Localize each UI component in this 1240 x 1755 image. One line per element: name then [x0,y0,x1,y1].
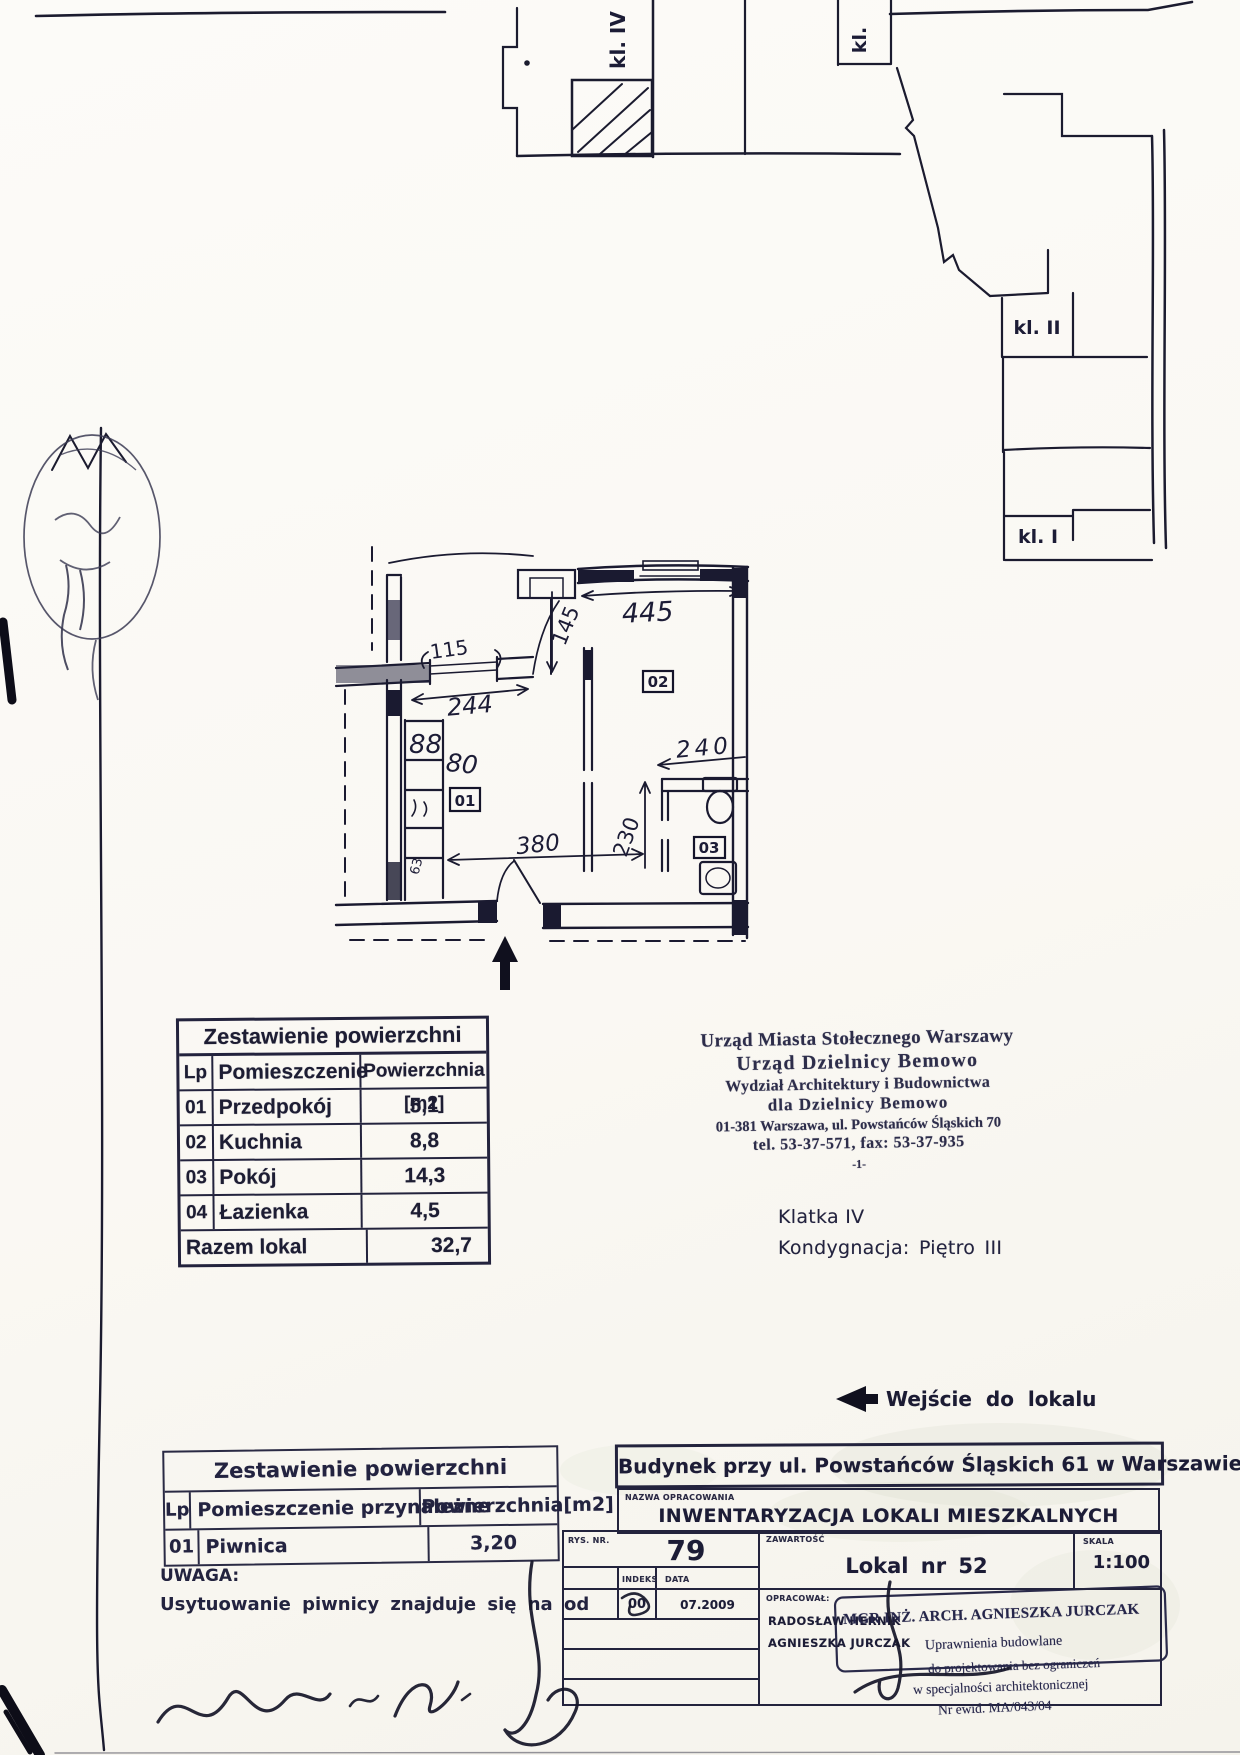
room-label-01: 01 [455,792,476,810]
col-area: Powierzchnia[m2] [421,1486,614,1525]
dim-80: 80 [445,748,480,780]
note-text: Usytuowanie piwnicy znajduje się na odwr… [160,1594,590,1615]
total-value: 32,7 [368,1229,488,1263]
drawing-name: INWENTARYZACJA LOKALI MIESZKALNYCH [619,1505,1158,1527]
washbasin-fixture [700,862,736,894]
annex-table-header: Lp Pomieszczenie przynależne Powierzchni… [165,1487,557,1530]
index-label-cell: INDEKS [619,1568,657,1590]
drawing-number-cell: RYS. NR. 79 [564,1532,760,1568]
col-lp: Lp [179,1056,213,1089]
dim-115: 115 [428,635,469,664]
table-total-row: Razem lokal 32,7 [181,1229,488,1265]
scale-label: SKALA [1083,1537,1114,1546]
col-area: Powierzchnia [m2] [361,1054,486,1088]
area-table-title: Zestawienie powierzchni [179,1019,486,1057]
office-stamp: Urząd Miasta Stołecznego Warszawy Urząd … [627,1024,1089,1176]
area-summary-table: Zestawienie powierzchni Lp Pomieszczenie… [176,1016,491,1268]
scanned-inventory-sheet: kl. IV kl. kl. II kl. I [0,0,1240,1755]
row-lp: 01 [180,1091,214,1124]
room-label-03: 03 [699,839,720,857]
building-address: Budynek przy ul. Powstańców Śląskich 61 … [615,1442,1164,1489]
table-row: 01 Piwnica 3,20 [165,1525,557,1564]
location-info: Klatka IV Kondygnacja: Piętro III [778,1206,1002,1259]
drawing-number-label: RYS. NR. [568,1536,610,1545]
empty-cell [564,1650,760,1680]
contents-value: Lokal nr 52 [760,1554,1073,1578]
col-room: Pomieszczenie [213,1055,361,1089]
prepared-by-label: OPRACOWAŁ: [766,1594,830,1603]
table-row: 02 Kuchnia 8,8 [180,1124,487,1162]
table-row: 01 Przedpokój 5,1 [180,1089,487,1127]
prepared-by-name: AGNIESZKA JURCZAK [768,1636,910,1650]
col-room: Pomieszczenie przynależne [191,1489,421,1528]
row-room: Kuchnia [214,1125,362,1159]
dim-240: 240 [675,733,733,764]
date-label: DATA [665,1575,689,1584]
stairwell-label-kl-ii: kl. II [1013,317,1060,339]
table-row: 04 Łazienka 4,5 [180,1194,487,1232]
drawing-name-label: NAZWA OPRACOWANIA [625,1493,734,1502]
scale-cell: SKALA 1:100 [1075,1532,1160,1590]
drawing-name-cell: NAZWA OPRACOWANIA INWENTARYZACJA LOKALI … [617,1488,1160,1534]
row-room: Łazienka [214,1195,362,1229]
col-lp: Lp [165,1492,192,1528]
index-label: INDEKS [622,1575,658,1584]
row-area: 14,3 [362,1159,487,1193]
floor-label: Kondygnacja: Piętro III [778,1237,1002,1259]
row-area: 3,20 [429,1525,557,1561]
empty-cell [564,1620,760,1650]
row-area: 8,8 [362,1124,487,1158]
scale-value: 1:100 [1075,1552,1160,1573]
dimension-lines [412,587,745,868]
annex-area-table: Zestawienie powierzchni Lp Pomieszczenie… [162,1445,560,1567]
contents-cell: ZAWARTOŚĆ Lokal nr 52 [760,1532,1075,1590]
stairwell-label-kl-i: kl. I [1018,526,1058,548]
contents-label: ZAWARTOŚĆ [766,1535,825,1544]
index-value: 00 [619,1590,657,1620]
empty-cell [564,1680,760,1704]
total-label: Razem lokal [181,1230,368,1265]
row-area: 5,1 [362,1089,487,1123]
room-label-02: 02 [648,673,669,691]
dim-380: 380 [515,830,561,860]
row-lp: 01 [165,1530,199,1564]
staircase-label: Klatka IV [778,1206,1002,1228]
row-lp: 04 [180,1196,214,1229]
empty-cell [564,1590,619,1620]
annex-table-title: Zestawienie powierzchni [164,1447,557,1492]
site-plan-drawing [503,0,1166,560]
row-lp: 03 [180,1161,214,1194]
entrance-arrow-icon [492,936,518,990]
dim-445: 445 [621,596,674,630]
entrance-legend-label: Wejście do lokalu [886,1387,1096,1411]
scan-marks [2,622,40,1755]
row-room: Przedpokój [214,1090,362,1124]
table-row: 03 Pokój 14,3 [180,1159,487,1197]
round-stamp [24,435,160,700]
dim-88: 88 [409,730,442,760]
row-area: 4,5 [362,1194,487,1228]
dim-244: 244 [446,690,494,722]
entrance-legend-arrow-icon [836,1386,878,1412]
area-table-header: Lp Pomieszczenie Powierzchnia [m2] [179,1054,486,1092]
stairwell-label-kl-iv: kl. IV [606,11,630,69]
note-label: UWAGA: [160,1566,239,1586]
row-room: Piwnica [199,1527,429,1564]
row-lp: 02 [180,1126,214,1159]
date-value: 07.2009 [657,1590,760,1620]
stairwell-label-kl: kl. [849,27,871,53]
empty-cell [564,1568,619,1590]
row-room: Pokój [214,1160,362,1194]
date-label-cell: DATA [657,1568,760,1590]
dim-63: 63 [408,857,427,877]
